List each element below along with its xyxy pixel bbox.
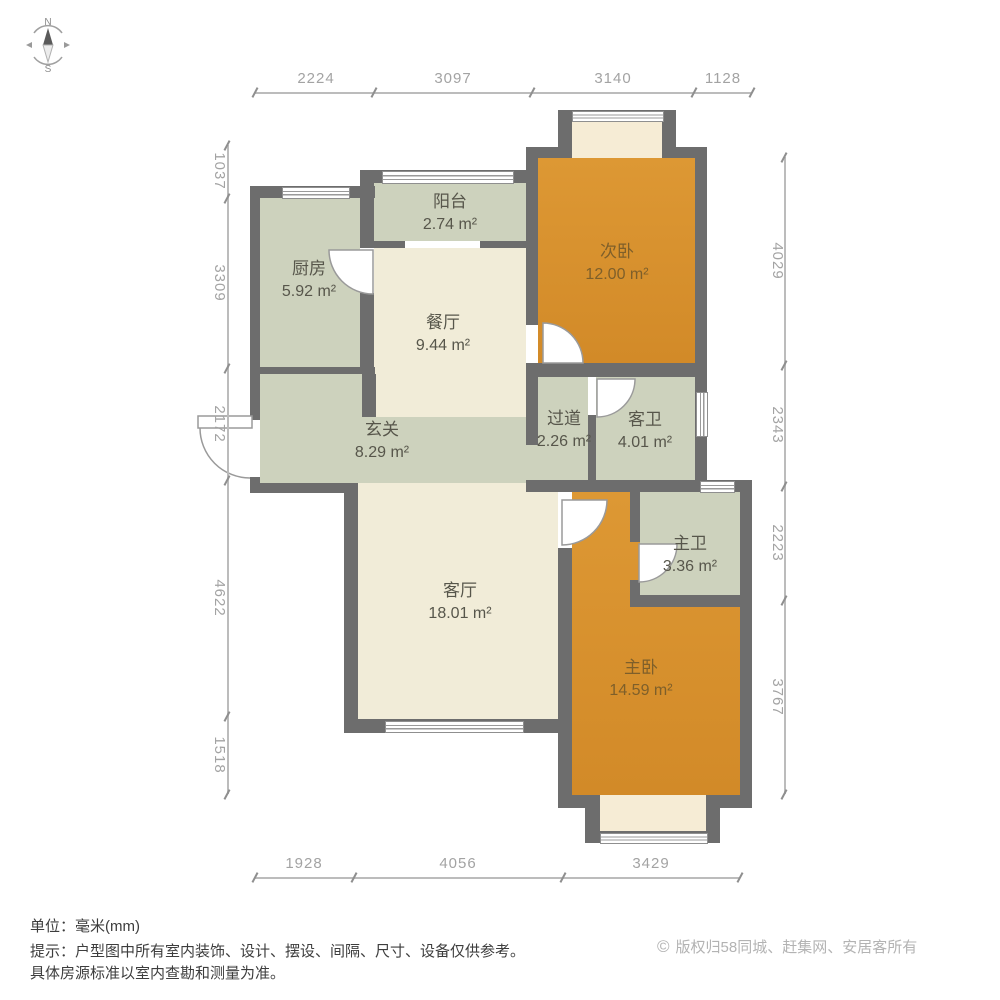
dim-label: 2224 <box>281 70 351 87</box>
dim-line-left <box>227 145 229 794</box>
dim-label: 1928 <box>269 855 339 872</box>
dim-label: 3767 <box>769 662 785 732</box>
dim-label: 2223 <box>769 508 785 578</box>
dim-label: 4056 <box>423 855 493 872</box>
dim-label: 4029 <box>769 226 785 296</box>
copyright-notice: © 版权归58同城、赶集网、安居客所有 <box>657 936 917 957</box>
dim-label: 1037 <box>211 136 227 206</box>
dim-line-top <box>255 92 752 94</box>
dim-label: 4622 <box>211 563 227 633</box>
dim-label: 3140 <box>578 70 648 87</box>
guest-bath-door-icon <box>597 379 635 417</box>
dim-label: 2343 <box>769 390 785 460</box>
copyright-text: 版权归58同城、赶集网、安居客所有 <box>676 936 918 957</box>
dim-label: 1518 <box>211 720 227 790</box>
kitchen-door-icon <box>329 250 373 294</box>
floorplan-canvas: N S <box>0 0 1000 1000</box>
dim-label: 3429 <box>616 855 686 872</box>
unit-note: 单位：毫米(mm) <box>30 915 140 936</box>
dim-label: 1128 <box>688 70 758 87</box>
dim-label: 3309 <box>211 248 227 318</box>
disclaimer-line1: 提示：户型图中所有室内装饰、设计、摆设、间隔、尺寸、设备仅供参考。 <box>30 940 525 961</box>
dim-line-bottom <box>255 877 740 879</box>
dim-label: 3097 <box>418 70 488 87</box>
copyright-icon: © <box>657 937 670 957</box>
door-swings-layer <box>0 0 1000 1000</box>
dim-label: 2172 <box>211 389 227 459</box>
master-bath-door-icon <box>639 544 677 582</box>
second-bedroom-door-icon <box>543 323 583 363</box>
master-bedroom-door-icon <box>562 500 607 545</box>
disclaimer-line2: 具体房源标准以室内查勘和测量为准。 <box>30 962 285 983</box>
